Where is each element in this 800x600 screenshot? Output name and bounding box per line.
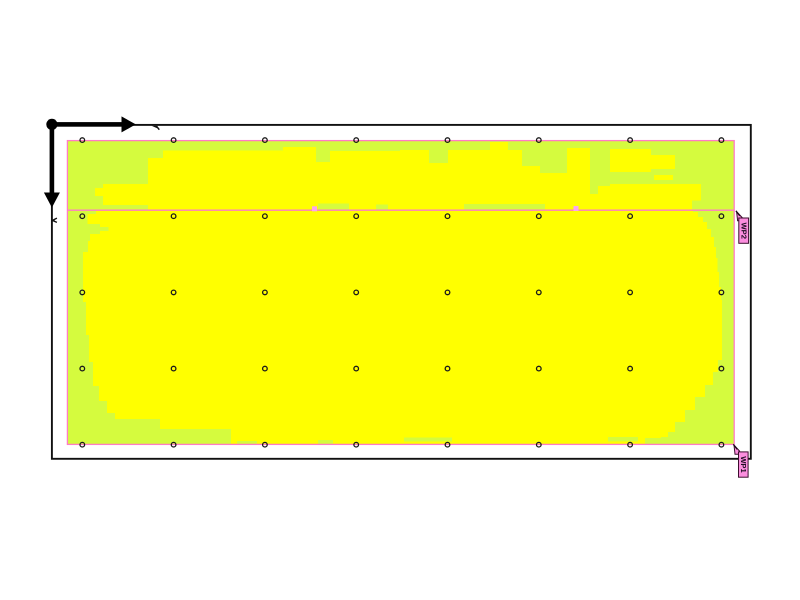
svg-text:WP2: WP2 xyxy=(739,222,748,238)
svg-text:WP1: WP1 xyxy=(739,456,748,473)
